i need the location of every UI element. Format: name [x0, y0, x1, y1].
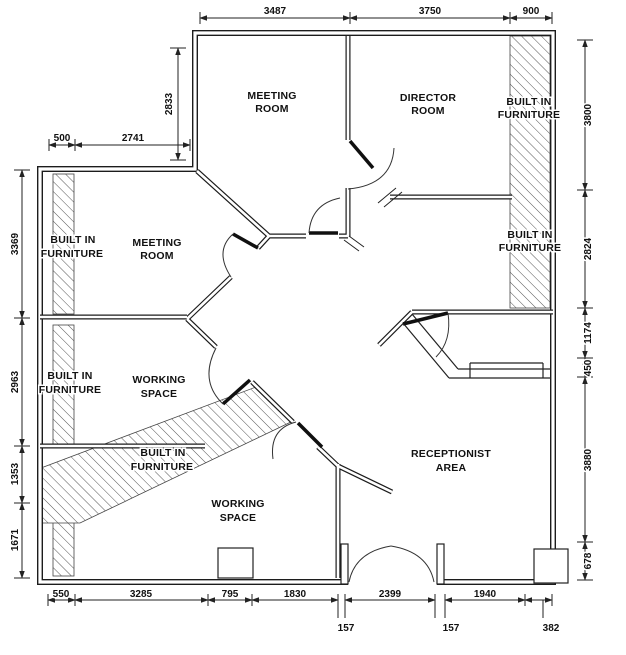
floor-plan-page: 3487 3750 900 500 2741 2833 3369 2963 13…: [0, 0, 626, 650]
door-leaf-meeting-left: [233, 234, 258, 248]
dim-bottom-6: 1940: [474, 589, 497, 600]
label-working-space-left-1: WORKING: [132, 374, 185, 386]
door-leaf-director: [350, 141, 373, 168]
dim-bottom-4: 1830: [284, 589, 307, 600]
label-meeting-room-top-1: MEETING: [247, 90, 296, 102]
door-arc-meeting-left: [223, 234, 233, 277]
dim-left-2: 2963: [10, 370, 21, 393]
dim-offset-1: 157: [338, 623, 355, 634]
hatch-right-strip: [510, 36, 550, 308]
door-arc-working-left: [209, 348, 223, 404]
dim-upper-left-1: 500: [54, 133, 71, 144]
label-built-in-band-2: FURNITURE: [131, 461, 193, 473]
entrance-right-jamb: [437, 544, 444, 584]
dim-offset-3: 382: [543, 623, 560, 634]
column-bottom-right: [534, 549, 568, 583]
label-working-space-bottom-2: SPACE: [220, 512, 256, 524]
label-receptionist-area-2: AREA: [436, 462, 467, 474]
dim-right-3: 1174: [583, 322, 594, 344]
door-arc-meeting-top: [309, 198, 340, 233]
label-meeting-room-left-1: MEETING: [132, 237, 181, 249]
dim-right-4: 450: [583, 359, 594, 376]
door-arc-director: [348, 148, 394, 189]
reception-desk: [403, 314, 551, 378]
label-built-in-top-right-2: FURNITURE: [498, 109, 560, 121]
label-built-in-left-upper-2: FURNITURE: [41, 248, 103, 260]
label-built-in-left-lower-2: FURNITURE: [39, 384, 101, 396]
label-working-space-bottom-1: WORKING: [211, 498, 264, 510]
label-built-in-band-1: BUILT IN: [140, 447, 185, 459]
dim-left-4: 1671: [10, 528, 21, 551]
dim-offset-2: 157: [443, 623, 460, 634]
dim-top-1: 3487: [264, 6, 287, 17]
dim-right-2: 2824: [583, 237, 594, 260]
label-director-room-2: ROOM: [411, 105, 445, 117]
dim-left-1: 3369: [10, 232, 21, 255]
hatch-bottom-left: [53, 521, 74, 576]
dim-bottom-2: 3285: [130, 589, 153, 600]
label-working-space-left-2: SPACE: [141, 388, 177, 400]
entrance-opening: [348, 575, 437, 589]
floor-plan-canvas: 3487 3750 900 500 2741 2833 3369 2963 13…: [0, 0, 626, 650]
label-built-in-top-right-1: BUILT IN: [506, 96, 551, 108]
door-leaf-working-bottom: [298, 423, 322, 447]
entrance-left-jamb: [341, 544, 348, 584]
dim-top-3: 900: [523, 6, 540, 17]
dim-bottom-5: 2399: [379, 589, 402, 600]
dim-upper-left-2: 2741: [122, 133, 145, 144]
dim-left-3: 1353: [10, 462, 21, 485]
built-in-furniture-hatch-areas: [41, 36, 550, 576]
label-built-in-left-lower-1: BUILT IN: [47, 370, 92, 382]
label-director-room-1: DIRECTOR: [400, 92, 456, 104]
dim-bottom-3: 795: [222, 589, 239, 600]
label-meeting-room-left-2: ROOM: [140, 250, 174, 262]
dim-left-inner: 2833: [164, 92, 175, 115]
column-bottom-middle: [218, 548, 253, 578]
dim-right-1: 3800: [583, 103, 594, 126]
dim-right-5: 3880: [583, 448, 594, 471]
label-built-in-left-upper-1: BUILT IN: [50, 234, 95, 246]
label-receptionist-area-1: RECEPTIONIST: [411, 448, 491, 460]
dim-bottom-1: 550: [53, 589, 70, 600]
label-built-in-right-mid-1: BUILT IN: [507, 229, 552, 241]
label-built-in-right-mid-2: FURNITURE: [499, 242, 561, 254]
label-meeting-room-top-2: ROOM: [255, 103, 289, 115]
dim-top-2: 3750: [419, 6, 442, 17]
dimension-lines: [22, 18, 585, 600]
dim-right-6: 678: [583, 552, 594, 569]
